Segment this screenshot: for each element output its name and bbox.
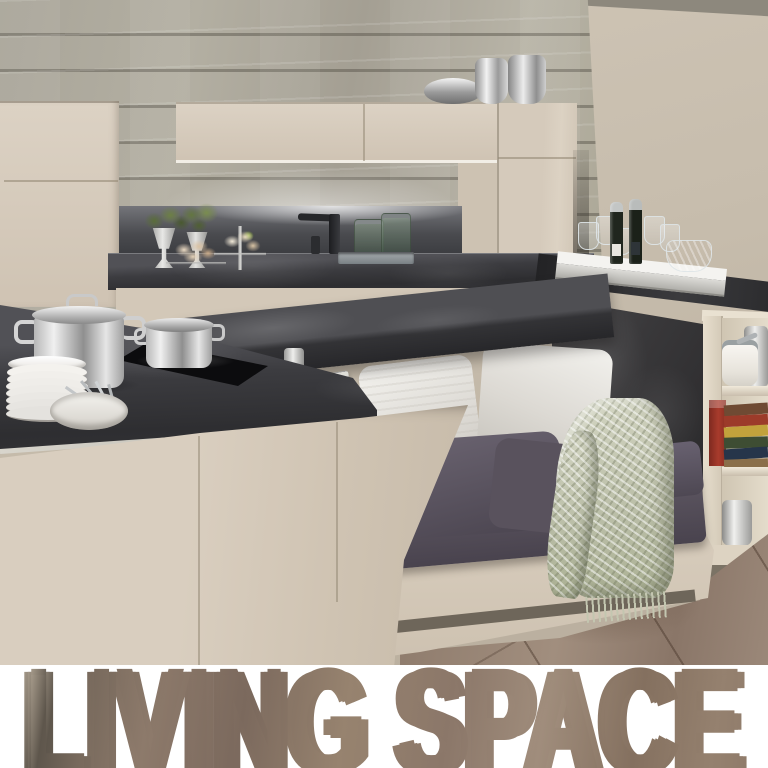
silver-vase [508, 55, 546, 104]
cutlery-bowl [50, 392, 128, 430]
glass-canister [381, 213, 411, 255]
sink [338, 252, 414, 264]
bridge-cabinet [176, 102, 497, 163]
book-stack [724, 404, 768, 468]
silver-pitcher [722, 500, 752, 546]
silver-bowl [424, 78, 482, 104]
saute-pan-rim [144, 318, 214, 332]
soap-dispenser [311, 236, 320, 254]
headline-strip: LIVING SPACE LIVING SPACE LIVING SPACE L… [0, 665, 768, 768]
wall-cabinet-left [0, 101, 119, 307]
stock-pot-lid [32, 306, 126, 324]
kitchen-faucet [329, 214, 340, 254]
cabinet-seam [363, 104, 365, 161]
glass-canister [354, 219, 384, 255]
cabinet-seam [498, 157, 576, 159]
shelf-board [722, 386, 768, 396]
shelf-board [722, 467, 768, 476]
lid-knob [66, 294, 98, 306]
silver-vase [475, 58, 508, 104]
white-jug [722, 340, 758, 386]
bottle-label [612, 244, 621, 256]
cabinet-seam [336, 422, 338, 602]
dessert-stand [214, 226, 266, 270]
headline-text: LIVING SPACE [0, 665, 768, 768]
glass-bowl [666, 240, 712, 272]
cabinet-seam [4, 180, 118, 182]
cabinet-side-panel [458, 163, 497, 258]
cabinet-seam [198, 436, 200, 666]
kitchen-photo: LIVING SPACE LIVING SPACE LIVING SPACE L… [0, 0, 768, 768]
bottle-label [631, 242, 640, 255]
